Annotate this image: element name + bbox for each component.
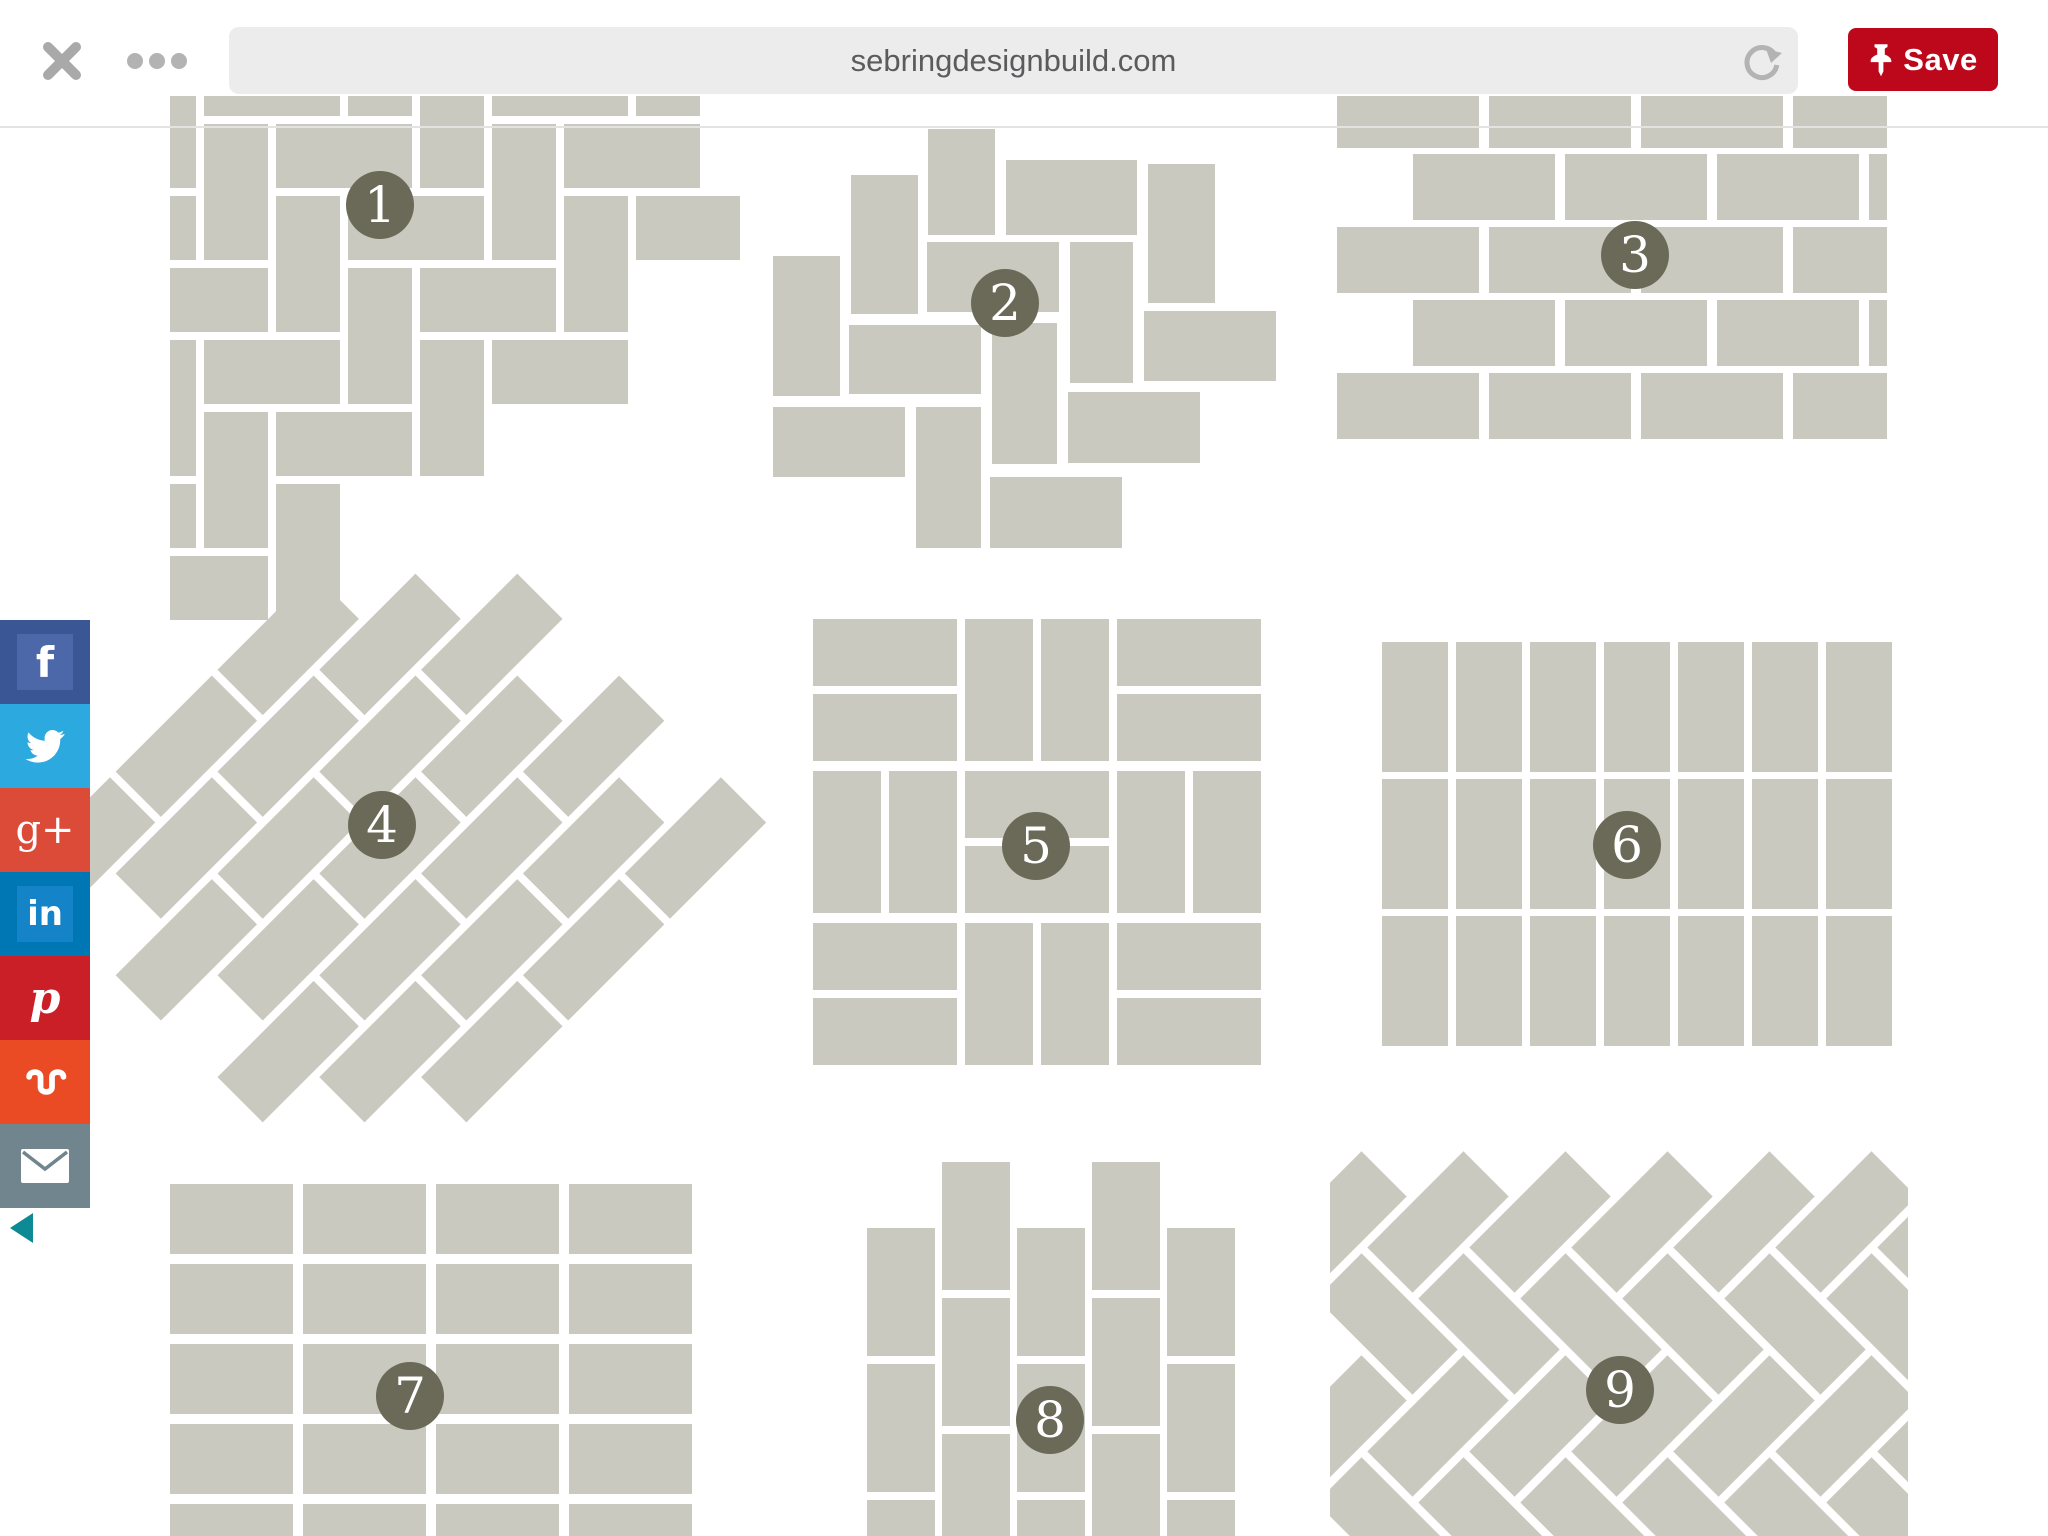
pinterest-icon: p xyxy=(30,973,61,1024)
facebook-icon: f xyxy=(36,638,54,687)
page-divider-line xyxy=(0,126,2048,128)
pattern-3-badge: 3 xyxy=(1601,221,1669,289)
email-icon xyxy=(20,1148,70,1184)
tile-patterns-image: 123456789 xyxy=(0,0,2048,1536)
url-bar[interactable]: sebringdesignbuild.com xyxy=(229,27,1798,94)
google-plus-share-button[interactable]: g+ xyxy=(0,788,90,872)
save-button-label: Save xyxy=(1903,42,1977,78)
pattern-9-number: 9 xyxy=(1604,1361,1636,1419)
browser-toolbar: sebringdesignbuild.com Save xyxy=(0,0,2048,96)
twitter-share-button[interactable] xyxy=(0,704,90,788)
linkedin-icon: in xyxy=(27,894,63,934)
social-share-rail: fg+inp xyxy=(0,620,90,1208)
pattern-5-badge: 5 xyxy=(1002,812,1070,880)
pattern-6-badge: 6 xyxy=(1593,811,1661,879)
pattern-7-diagram xyxy=(170,1184,692,1536)
pattern-4-number: 4 xyxy=(366,796,398,854)
pattern-8-number: 8 xyxy=(1034,1391,1066,1449)
pattern-2-badge: 2 xyxy=(971,269,1039,337)
url-text: sebringdesignbuild.com xyxy=(229,27,1798,94)
pattern-9-badge: 9 xyxy=(1586,1356,1654,1424)
pattern-2-diagram xyxy=(773,129,1276,548)
google-plus-icon: g+ xyxy=(15,807,74,853)
pattern-7-number: 7 xyxy=(394,1367,426,1425)
close-icon[interactable] xyxy=(38,37,86,85)
pinterest-share-button[interactable]: p xyxy=(0,956,90,1040)
pattern-1-number: 1 xyxy=(364,176,396,234)
pattern-4-badge: 4 xyxy=(348,791,416,859)
linkedin-share-button[interactable]: in xyxy=(0,872,90,956)
pattern-1-badge: 1 xyxy=(346,171,414,239)
pattern-8-badge: 8 xyxy=(1016,1386,1084,1454)
stumbleupon-share-button[interactable] xyxy=(0,1040,90,1124)
save-button[interactable]: Save xyxy=(1848,28,1998,91)
stumbleupon-icon xyxy=(23,1068,67,1096)
more-options-icon[interactable] xyxy=(126,48,188,74)
pattern-5-number: 5 xyxy=(1020,817,1052,875)
pinterest-in-app-browser: 123456789 sebringdesignbuild.com Save fg… xyxy=(0,0,2048,1536)
pin-icon xyxy=(1868,43,1894,77)
pattern-2-number: 2 xyxy=(989,274,1021,332)
pattern-6-number: 6 xyxy=(1611,816,1643,874)
pattern-7-badge: 7 xyxy=(376,1362,444,1430)
refresh-icon[interactable] xyxy=(1740,39,1784,83)
pattern-9-diagram xyxy=(1265,1151,2048,1536)
twitter-icon xyxy=(23,727,67,765)
email-share-button[interactable] xyxy=(0,1124,90,1208)
facebook-share-button[interactable]: f xyxy=(0,620,90,704)
pattern-3-diagram xyxy=(1337,96,2011,439)
pattern-8-diagram xyxy=(867,1162,1235,1536)
pattern-3-number: 3 xyxy=(1619,226,1651,284)
